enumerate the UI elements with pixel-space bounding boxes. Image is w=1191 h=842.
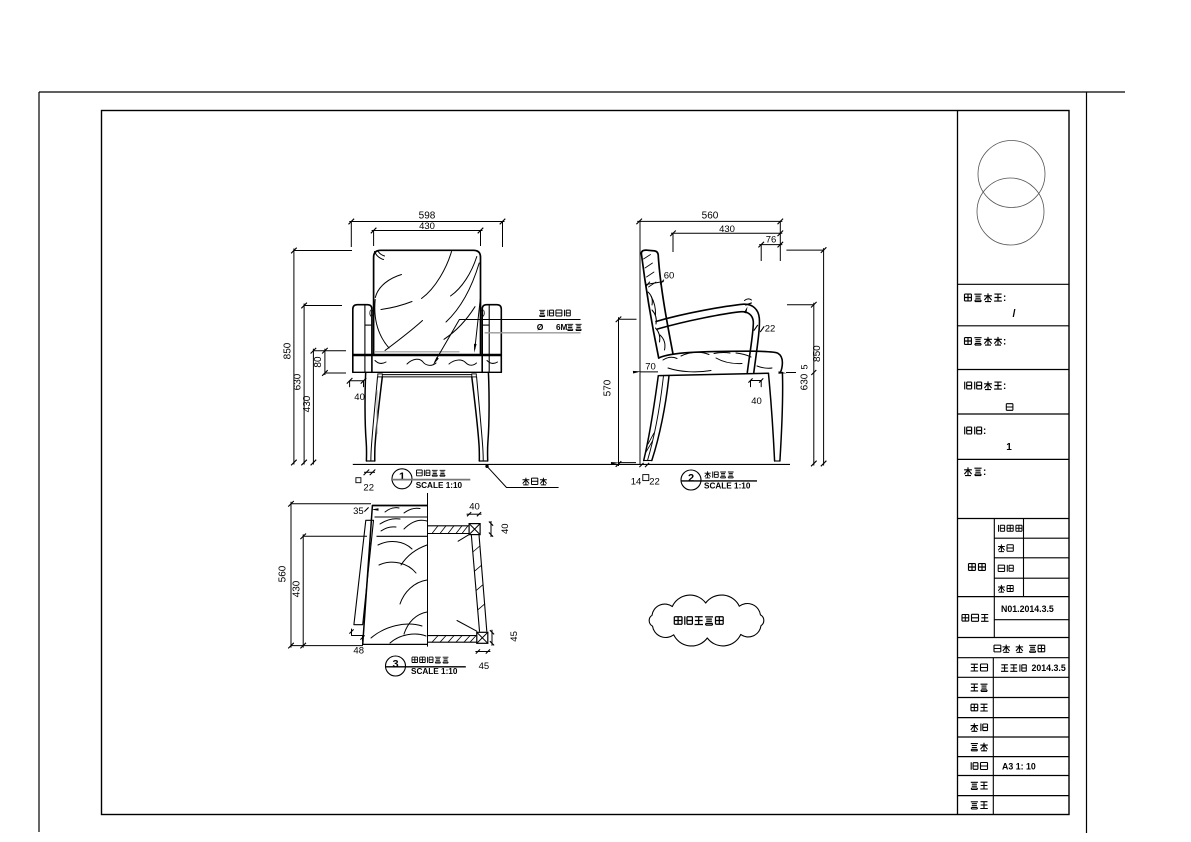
svg-text:60: 60 <box>664 271 675 282</box>
svg-text:SCALE 1:10: SCALE 1:10 <box>411 667 458 676</box>
svg-text:76: 76 <box>766 235 777 246</box>
svg-text:45: 45 <box>479 661 490 672</box>
svg-text:/: / <box>1012 308 1015 320</box>
svg-text::: : <box>983 426 986 437</box>
svg-text::: : <box>1003 337 1006 348</box>
svg-text:1: 1 <box>399 471 405 483</box>
svg-text:SCALE 1:10: SCALE 1:10 <box>704 481 751 490</box>
svg-text:3: 3 <box>392 659 398 671</box>
svg-text:40: 40 <box>500 523 511 534</box>
svg-text:598: 598 <box>419 211 436 222</box>
svg-text:A3 1: 10: A3 1: 10 <box>1002 761 1036 771</box>
svg-text:22: 22 <box>363 483 374 494</box>
svg-text:2014.3.5: 2014.3.5 <box>1032 663 1066 673</box>
svg-text:80: 80 <box>313 356 324 368</box>
svg-text:70: 70 <box>645 362 656 373</box>
svg-text:2: 2 <box>688 473 694 485</box>
svg-text::: : <box>1003 381 1006 392</box>
svg-text:430: 430 <box>292 580 303 597</box>
svg-text:850: 850 <box>282 342 293 359</box>
svg-text:430: 430 <box>719 224 735 235</box>
svg-text::: : <box>1003 293 1006 304</box>
svg-text:SCALE 1:10: SCALE 1:10 <box>416 481 463 490</box>
svg-text:48: 48 <box>353 646 364 657</box>
svg-text:40: 40 <box>751 396 762 407</box>
svg-text:430: 430 <box>302 395 313 412</box>
svg-text:N01.2014.3.5: N01.2014.3.5 <box>1001 604 1054 614</box>
svg-text:Ø: Ø <box>537 322 544 332</box>
svg-text:430: 430 <box>419 221 435 232</box>
svg-text:570: 570 <box>603 379 614 396</box>
svg-text:22: 22 <box>765 324 776 335</box>
svg-text:35: 35 <box>353 506 364 517</box>
svg-text:6M: 6M <box>556 323 568 332</box>
svg-text:40: 40 <box>354 392 365 403</box>
svg-text:5: 5 <box>799 364 809 369</box>
svg-text:40: 40 <box>469 502 480 513</box>
svg-text::: : <box>983 467 986 478</box>
svg-text:630: 630 <box>293 373 304 390</box>
svg-text:630: 630 <box>799 373 810 390</box>
svg-text:1: 1 <box>1006 442 1012 453</box>
svg-text:560: 560 <box>702 210 719 221</box>
svg-text:560: 560 <box>278 565 289 582</box>
svg-text:14: 14 <box>631 477 642 488</box>
svg-text:45: 45 <box>509 631 520 642</box>
svg-text:22: 22 <box>649 477 660 488</box>
